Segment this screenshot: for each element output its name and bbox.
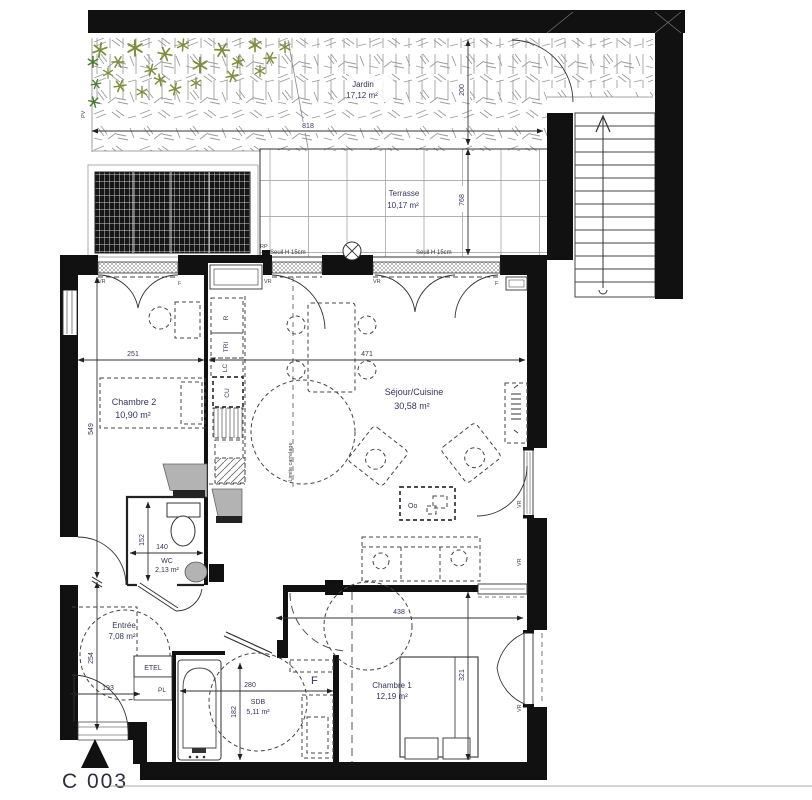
pl-label: PL	[158, 687, 166, 694]
wall-left-lower	[60, 585, 78, 740]
seuil-label-2: Seuil H 15cm	[416, 250, 452, 256]
room-label-sdb: SDB	[251, 699, 266, 706]
armchair-2	[440, 422, 502, 484]
grate-area	[88, 165, 258, 257]
room-area-terrasse: 10,17 m²	[387, 201, 419, 210]
turning-circle-sejour	[251, 380, 355, 484]
wall-top	[88, 10, 685, 33]
wc-washbasin	[185, 562, 207, 582]
dining-table	[308, 303, 355, 392]
room-area-chambre1: 12,19 m²	[376, 692, 408, 701]
sejour-furniture: Oo	[251, 303, 527, 581]
pv-label: PV	[81, 110, 87, 118]
terrace-area: Terrasse 10,17 m²	[260, 149, 550, 257]
bed-chambre2-pillow	[181, 382, 202, 424]
room-label-chambre2: Chambre 2	[112, 397, 157, 407]
wall-stub-wc	[209, 564, 224, 582]
sdb-fixtures	[178, 653, 333, 760]
wall-top-seg3	[208, 255, 265, 263]
wall-top-seg1	[60, 255, 98, 275]
dim-garden-width: 818	[302, 123, 314, 130]
room-label-chambre1: Chambre 1	[372, 681, 412, 690]
toilet-bowl	[171, 516, 195, 546]
dim-chambre1-width: 438	[393, 609, 405, 616]
dim-chambre1-height: 321	[459, 669, 466, 681]
window-sill-sejour-2	[373, 262, 500, 273]
etel-closet: ETEL PL	[134, 656, 172, 700]
dim-entree-width: 193	[102, 685, 114, 692]
kitchen-fridge-label: R	[223, 315, 230, 320]
unit-label: C 003	[62, 770, 128, 793]
wall-stair-left	[547, 113, 573, 260]
basin-counter-1	[163, 464, 207, 497]
kitchen-units: R TRI LC CU Limite carrelage	[163, 277, 294, 523]
bed-cushion-1	[405, 738, 438, 759]
entrance-door	[72, 675, 128, 740]
basin-counter-2	[212, 489, 242, 523]
f-label-2: F	[495, 281, 499, 287]
dim-sdb-height: 182	[231, 706, 238, 718]
bathtub	[178, 660, 221, 760]
room-area-entree: 7,08 m²	[108, 632, 135, 641]
kitchen-box-7	[215, 458, 245, 483]
dim-wc-height: 152	[139, 534, 146, 546]
floor-plan: Jardin 17,12 m² PV Terrasse 10,17 m²	[0, 0, 812, 800]
kitchen-cu-label: CU	[224, 388, 231, 398]
coffee-table: Oo	[400, 487, 455, 520]
vr-label-5: VR	[517, 558, 523, 566]
garden-grass-hatch	[92, 38, 547, 104]
window-sill-chambre2	[98, 262, 178, 273]
entrance-triangle-icon	[81, 739, 109, 768]
bathtub-tap	[192, 748, 206, 753]
room-label-terrasse: Terrasse	[389, 189, 420, 198]
floor-plan-page: Jardin 17,12 m² PV Terrasse 10,17 m²	[0, 0, 812, 800]
wall-hall-chambre1	[283, 592, 288, 658]
vr-label-6: VR	[517, 704, 523, 712]
room-area-wc: 2,13 m²	[155, 567, 179, 574]
window-sill-sejour-1	[272, 262, 322, 273]
window-left-wall	[62, 287, 78, 339]
f-label-3: F	[311, 675, 318, 687]
chair-4	[358, 361, 376, 379]
dim-garden-depth: 200	[459, 84, 466, 96]
dim-terrace: 768	[459, 194, 466, 206]
dim-sejour-width: 471	[361, 351, 373, 358]
wall-entrance-jamb	[128, 722, 147, 740]
wall-right-seg2	[527, 518, 547, 630]
wc-door	[138, 583, 202, 611]
seuil-label-1: Seuil H 15cm	[270, 250, 306, 256]
dim-entree-height: 254	[88, 652, 95, 664]
radiator	[505, 383, 527, 443]
garden-grass-right	[547, 38, 653, 88]
wall-bottom	[140, 762, 547, 780]
wall-right-seg1	[527, 275, 547, 448]
desk-chair-chambre2	[149, 307, 171, 329]
sdb-shelf	[290, 660, 333, 672]
dim-wc-width: 140	[156, 544, 168, 551]
wall-cabinet-right	[506, 277, 527, 290]
wall-kitchen-divider	[204, 275, 208, 585]
left-wall-door	[60, 537, 126, 587]
staircase	[575, 113, 655, 297]
drain-symbol-icon	[343, 242, 361, 260]
desk-chambre2	[175, 302, 200, 338]
wall-sdb-top	[172, 651, 225, 655]
vr-label-4: VR	[517, 500, 523, 508]
room-label-entree: Entrée	[112, 621, 136, 630]
wall-partition-block	[325, 580, 343, 595]
tiny-labels: VR VR VR VR VR VR F F F	[98, 279, 523, 712]
f-label-1: F	[178, 281, 182, 287]
chambre1-door-swing	[290, 593, 348, 651]
window-right-sejour	[477, 447, 534, 519]
casement-chambre2	[98, 275, 178, 308]
sdb-washbasin-inner	[307, 717, 328, 753]
room-label-jardin: Jardin	[352, 80, 374, 89]
wall-sdb-left	[172, 655, 176, 762]
unit-mark: C 003	[62, 739, 128, 793]
chair-2	[287, 361, 305, 379]
grate-grid	[95, 172, 250, 253]
toilet-tank	[167, 503, 200, 517]
vr-label-2: VR	[264, 279, 272, 285]
window-right-chambre1	[497, 630, 542, 708]
wall-stair-right	[655, 33, 683, 299]
casement-sejour-main	[375, 275, 498, 318]
casement-sejour-left	[272, 275, 325, 329]
chair-1	[287, 316, 305, 334]
wall-bottom-step	[133, 740, 147, 764]
kitchen-box-6	[215, 440, 243, 458]
bed-cushion-2	[443, 738, 470, 759]
dim-chambre2-width: 251	[127, 351, 139, 358]
room-area-chambre2: 10,90 m²	[115, 410, 151, 420]
room-label-sejour: Séjour/Cuisine	[385, 387, 444, 397]
room-area-sejour: 30,58 m²	[394, 401, 430, 411]
dim-chambre2-height: 549	[88, 423, 95, 435]
glass-partition-chambre1	[478, 584, 527, 597]
room-label-wc: WC	[161, 558, 173, 565]
wall-top-seg6	[500, 255, 547, 275]
coffee-table-symbol: Oo	[408, 503, 417, 510]
sofa	[362, 537, 480, 581]
kitchen-sink-box	[213, 408, 243, 438]
dim-sdb-width: 280	[244, 682, 256, 689]
rp-label: RP	[260, 244, 268, 250]
etel-label: ETEL	[144, 665, 162, 672]
armchair-1	[347, 425, 409, 487]
kitchen-lc-label: LC	[222, 364, 229, 373]
wall-top-seg2	[178, 255, 208, 275]
vr-label-1: VR	[98, 279, 106, 285]
chair-3	[358, 316, 376, 334]
limite-carrelage-label: Limite carrelage	[288, 442, 294, 481]
kitchen-fridge-box	[211, 298, 243, 333]
room-area-sdb: 5,11 m²	[246, 709, 270, 716]
room-area-jardin: 17,12 m²	[346, 91, 378, 100]
sdb-sliding-door	[224, 632, 272, 657]
vr-label-3: VR	[373, 279, 381, 285]
wall-cabinet-kitchen	[210, 265, 262, 289]
kitchen-tri-label: TRI	[223, 342, 230, 353]
wall-sdb-right	[333, 655, 339, 762]
